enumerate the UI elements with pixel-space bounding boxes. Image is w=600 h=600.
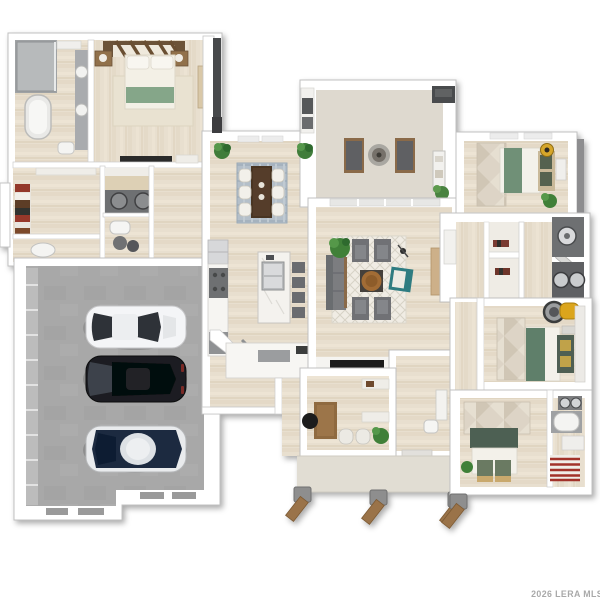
svg-text:2026 LERA MLS: 2026 LERA MLS: [531, 589, 600, 599]
